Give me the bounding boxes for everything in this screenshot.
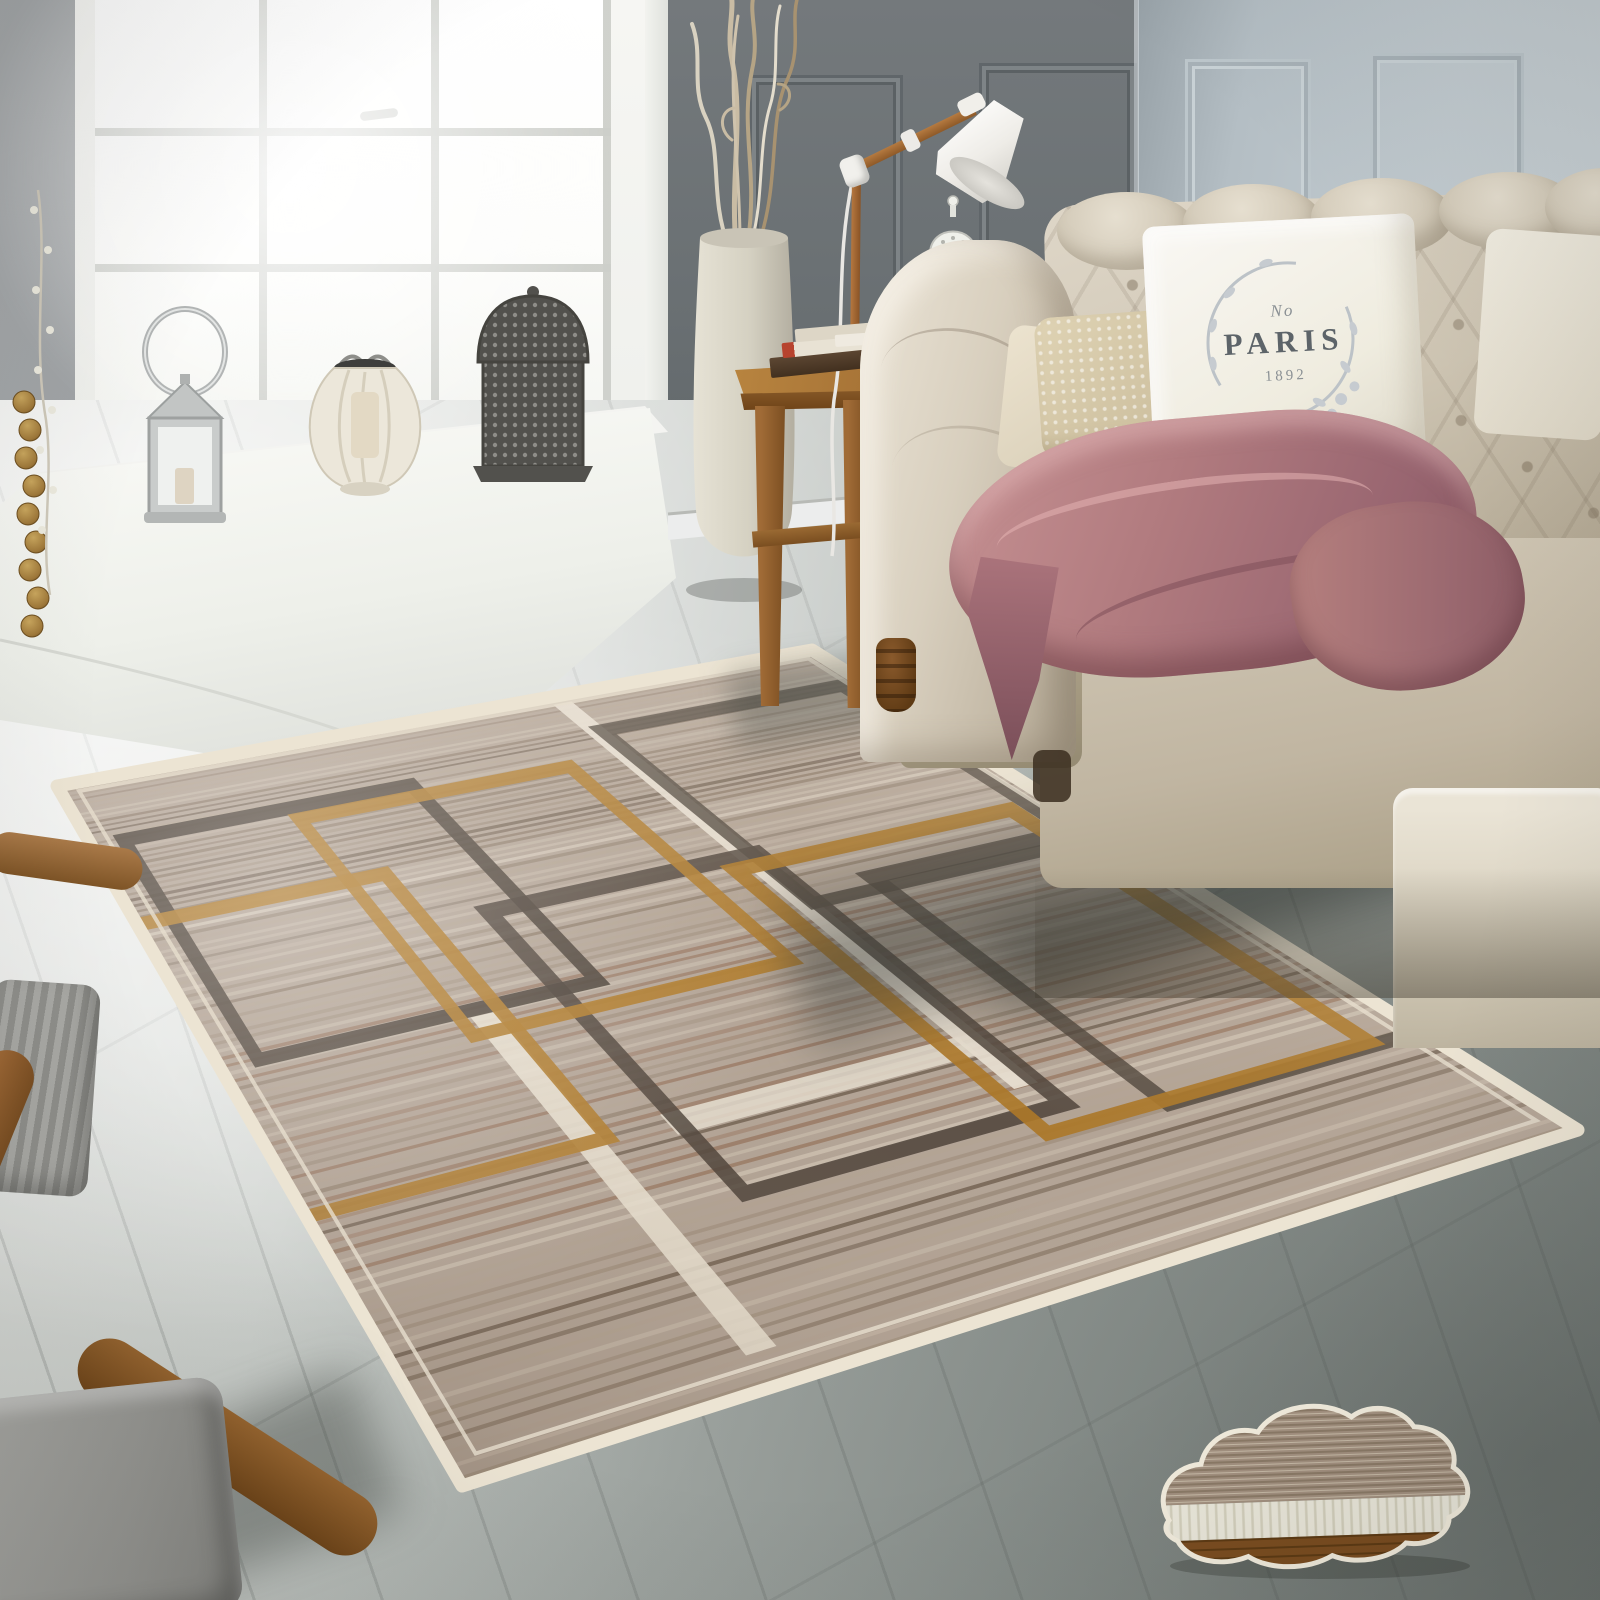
pillow-text-paris: PARIS [1223, 321, 1345, 362]
sofa-wooden-foot [1033, 750, 1071, 802]
swatch-layer-weave [1137, 1384, 1501, 1506]
sofa-base-shadow [1035, 868, 1600, 998]
sofa-wooden-foot [876, 638, 916, 712]
living-room-photo: No PARIS 1892 [0, 0, 1600, 1600]
white-pillow-right [1473, 228, 1600, 441]
chesterfield-sofa: No PARIS 1892 [845, 180, 1600, 1060]
pillow-text-year: 1892 [1264, 367, 1307, 385]
rug-material-swatch-cloud [1130, 1380, 1510, 1600]
pillow-text-no: No [1269, 300, 1295, 320]
